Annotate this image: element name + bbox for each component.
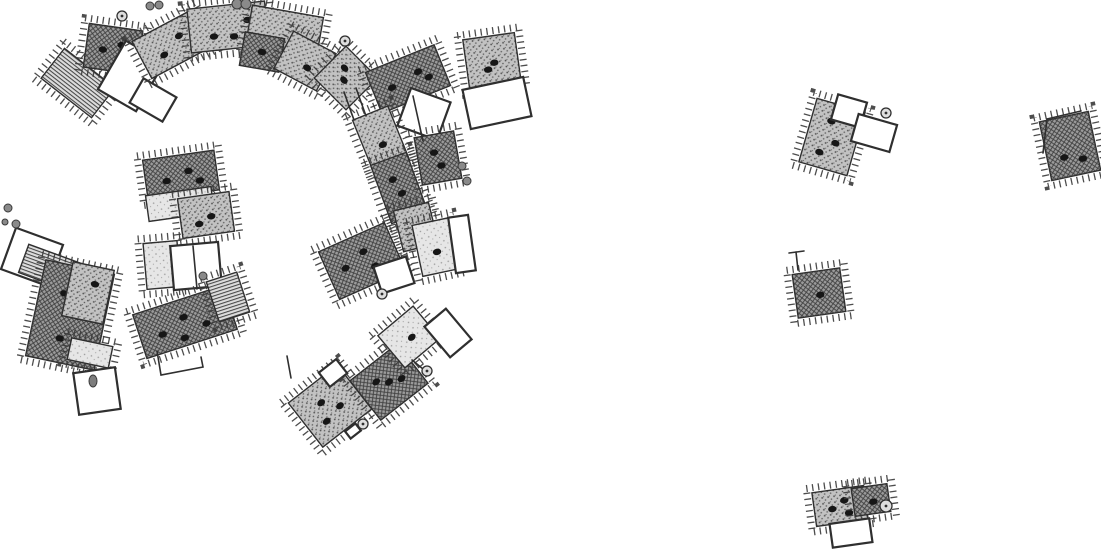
marker-point-r4 xyxy=(880,500,892,512)
marker-stone-ring-nc xyxy=(340,36,350,46)
site-plan-figure xyxy=(0,0,1101,550)
marker-point-l-west xyxy=(358,419,368,429)
marker-stone-pair-n-b xyxy=(241,0,251,9)
building-r1-court-east xyxy=(851,114,897,152)
marker-stone-i-court xyxy=(89,375,97,387)
building-r4-court xyxy=(830,518,873,547)
marker-stone-pair-nw-a xyxy=(146,2,154,10)
wall-line-r3-corner-a xyxy=(796,252,798,270)
site-plan-canvas xyxy=(0,0,1101,550)
marker-stone-e-b xyxy=(463,177,471,185)
wall-line-l-west-wall xyxy=(287,356,291,378)
wall-line-r3-corner-b xyxy=(789,251,804,253)
building-r3-house xyxy=(787,262,852,324)
marker-point-r1 xyxy=(881,108,891,118)
marker-point-n-hall xyxy=(377,289,387,299)
marker-stone-e-a xyxy=(458,162,466,170)
building-i-south-court xyxy=(73,367,120,414)
marker-stone-pair-nw-b xyxy=(155,1,163,9)
marker-stone-w-b xyxy=(2,219,8,225)
building-m-court xyxy=(424,309,471,358)
marker-stone-ring-nw xyxy=(117,11,127,21)
marker-stone-w-a xyxy=(4,204,12,212)
buildings-layer xyxy=(1,0,1101,548)
wall-line-j-annex-wall xyxy=(157,351,203,375)
wall-lines-layer xyxy=(157,88,1081,378)
marker-stone-center xyxy=(199,272,207,280)
marker-stone-pair-n-a xyxy=(232,0,242,9)
marker-point-l-east xyxy=(422,366,432,376)
marker-stone-w-c xyxy=(12,220,20,228)
